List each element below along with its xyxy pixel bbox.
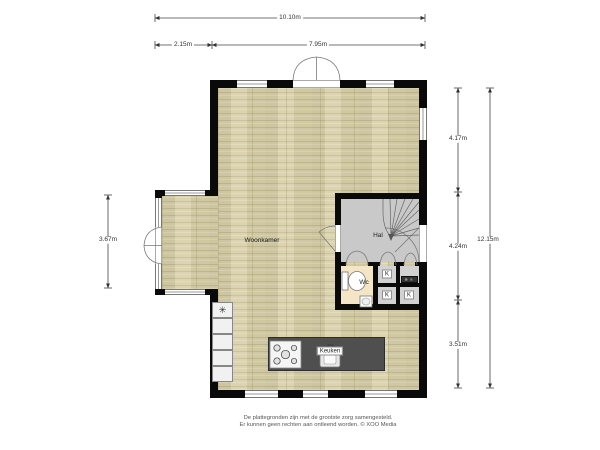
bay-window-left-upper: [155, 198, 162, 227]
window-bottom-2: [303, 390, 328, 398]
dim-right-top: 4.17m: [447, 136, 469, 143]
window-bottom-1: [245, 390, 278, 398]
living-room-label: Woonkamer: [245, 238, 280, 245]
window-bottom-3: [365, 390, 397, 398]
dim-total-height: 12.15m: [475, 237, 501, 244]
wc-label: Wc: [359, 280, 368, 287]
dim-bay-width: 2.15m: [172, 42, 194, 49]
front-door-opening: [419, 225, 427, 262]
door-opening-top: [293, 80, 340, 88]
bay-window-left-lower: [155, 264, 162, 289]
double-door-top-arc: [293, 57, 340, 80]
dim-right-bottom: 3.51m: [447, 342, 469, 349]
bay-window-top: [165, 190, 205, 196]
closet-label-1: K: [382, 270, 392, 279]
cabinet-3: [212, 334, 233, 350]
cabinet-4: [212, 350, 233, 366]
fridge-cabinet: ✳: [212, 302, 233, 318]
bay-floor: [162, 196, 218, 289]
disclaimer: De plattegronden zijn met de grootste zo…: [239, 415, 396, 429]
fridge-icon: ✳: [219, 305, 227, 315]
hall-wall-top: [335, 193, 427, 199]
closet-label-2: K: [382, 291, 392, 300]
bay-window-bottom: [165, 289, 205, 295]
closet-wall-bottom: [335, 304, 427, 310]
dim-main-width: 7.95m: [307, 42, 329, 49]
disclaimer-line-2: Er kunnen geen rechten aan ontleend word…: [239, 422, 396, 429]
hall-floor: [341, 199, 419, 262]
cabinet-2: [212, 318, 233, 334]
closet-wall-stub-2: [368, 262, 380, 266]
window-right: [419, 108, 427, 140]
kitchen-label: Keuken: [317, 347, 343, 356]
closet-wall-stub-4: [415, 262, 419, 266]
window-top-1: [237, 80, 267, 88]
boiler-appliance: [401, 276, 418, 283]
closet-wall-stub-1: [335, 262, 346, 266]
cabinet-5: [212, 366, 233, 382]
window-top-2: [366, 80, 394, 88]
hall-label: Hal: [373, 233, 383, 240]
wall-left-upper: [210, 80, 218, 190]
dim-total-width: 10.10m: [277, 15, 303, 22]
closet-divider-horizontal: [378, 283, 419, 287]
closet-label-3: K: [404, 291, 414, 300]
bay-door-opening: [155, 227, 162, 264]
hall-door-opening: [335, 225, 341, 252]
closet-wall-stub-3: [394, 262, 404, 266]
dim-bay-height: 3.67m: [97, 237, 119, 244]
floorplan-page: ✳: [0, 0, 600, 450]
dim-right-middle: 4.24m: [447, 244, 469, 251]
